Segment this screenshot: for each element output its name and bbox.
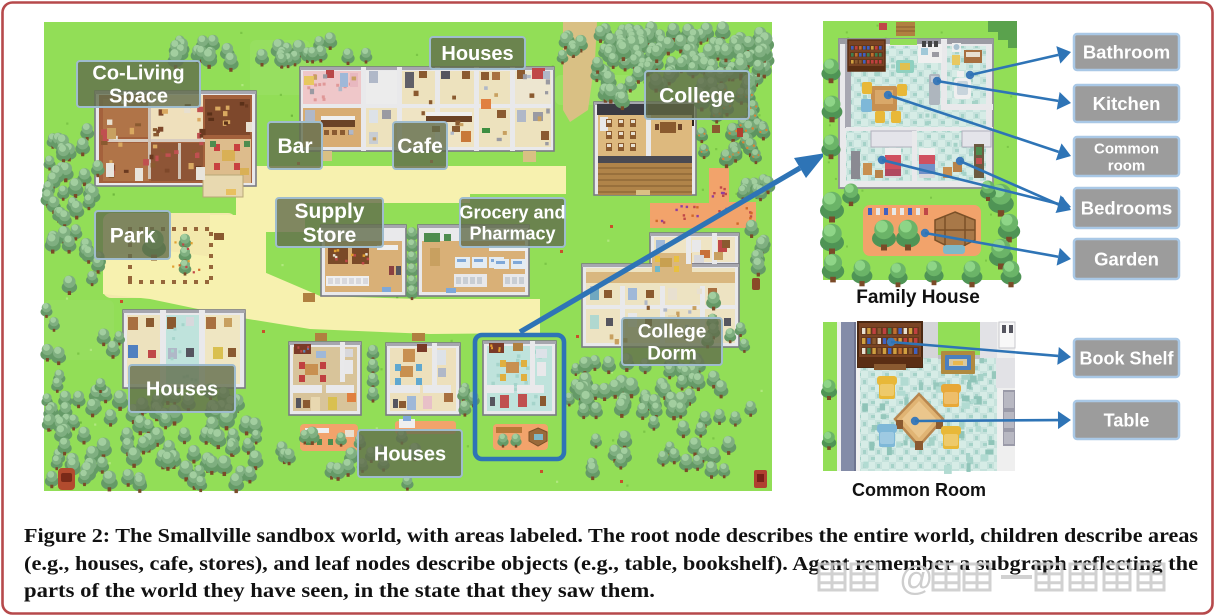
svg-text:Store: Store [303,224,357,247]
svg-text:Cafe: Cafe [397,135,443,158]
svg-text:room: room [1108,157,1146,174]
svg-text:@: @ [899,560,934,598]
svg-text:Garden: Garden [1094,249,1159,270]
svg-text:Houses: Houses [146,379,218,401]
svg-text:Supply: Supply [294,200,364,223]
svg-text:Pharmacy: Pharmacy [469,223,555,243]
svg-text:Family House: Family House [856,287,980,308]
svg-text:Houses: Houses [374,444,446,466]
svg-text:College: College [638,321,707,342]
svg-text:College: College [659,85,735,108]
svg-text:Co-Living: Co-Living [92,63,184,85]
svg-text:Space: Space [109,86,168,108]
svg-text:Houses: Houses [441,43,513,65]
svg-text:Book Shelf: Book Shelf [1079,348,1174,368]
svg-text:Bathroom: Bathroom [1083,42,1170,63]
svg-text:Common: Common [1094,140,1159,157]
svg-text:Common Room: Common Room [852,480,986,500]
svg-text:Kitchen: Kitchen [1093,93,1161,114]
svg-text:Bedrooms: Bedrooms [1081,198,1173,219]
svg-text:Bar: Bar [277,135,312,158]
svg-text:Park: Park [110,225,156,248]
svg-text:Dorm: Dorm [647,343,697,364]
svg-text:parts of the world they have s: parts of the world they have seen, in th… [24,580,655,602]
svg-text:Table: Table [1104,410,1150,430]
svg-text:Grocery and: Grocery and [459,202,565,222]
svg-text:Figure 2: The Smallville sandb: Figure 2: The Smallville sandbox world, … [24,525,1198,547]
svg-text:(e.g., houses, cafe, stores),: (e.g., houses, cafe, stores), and leaf n… [24,553,1198,575]
